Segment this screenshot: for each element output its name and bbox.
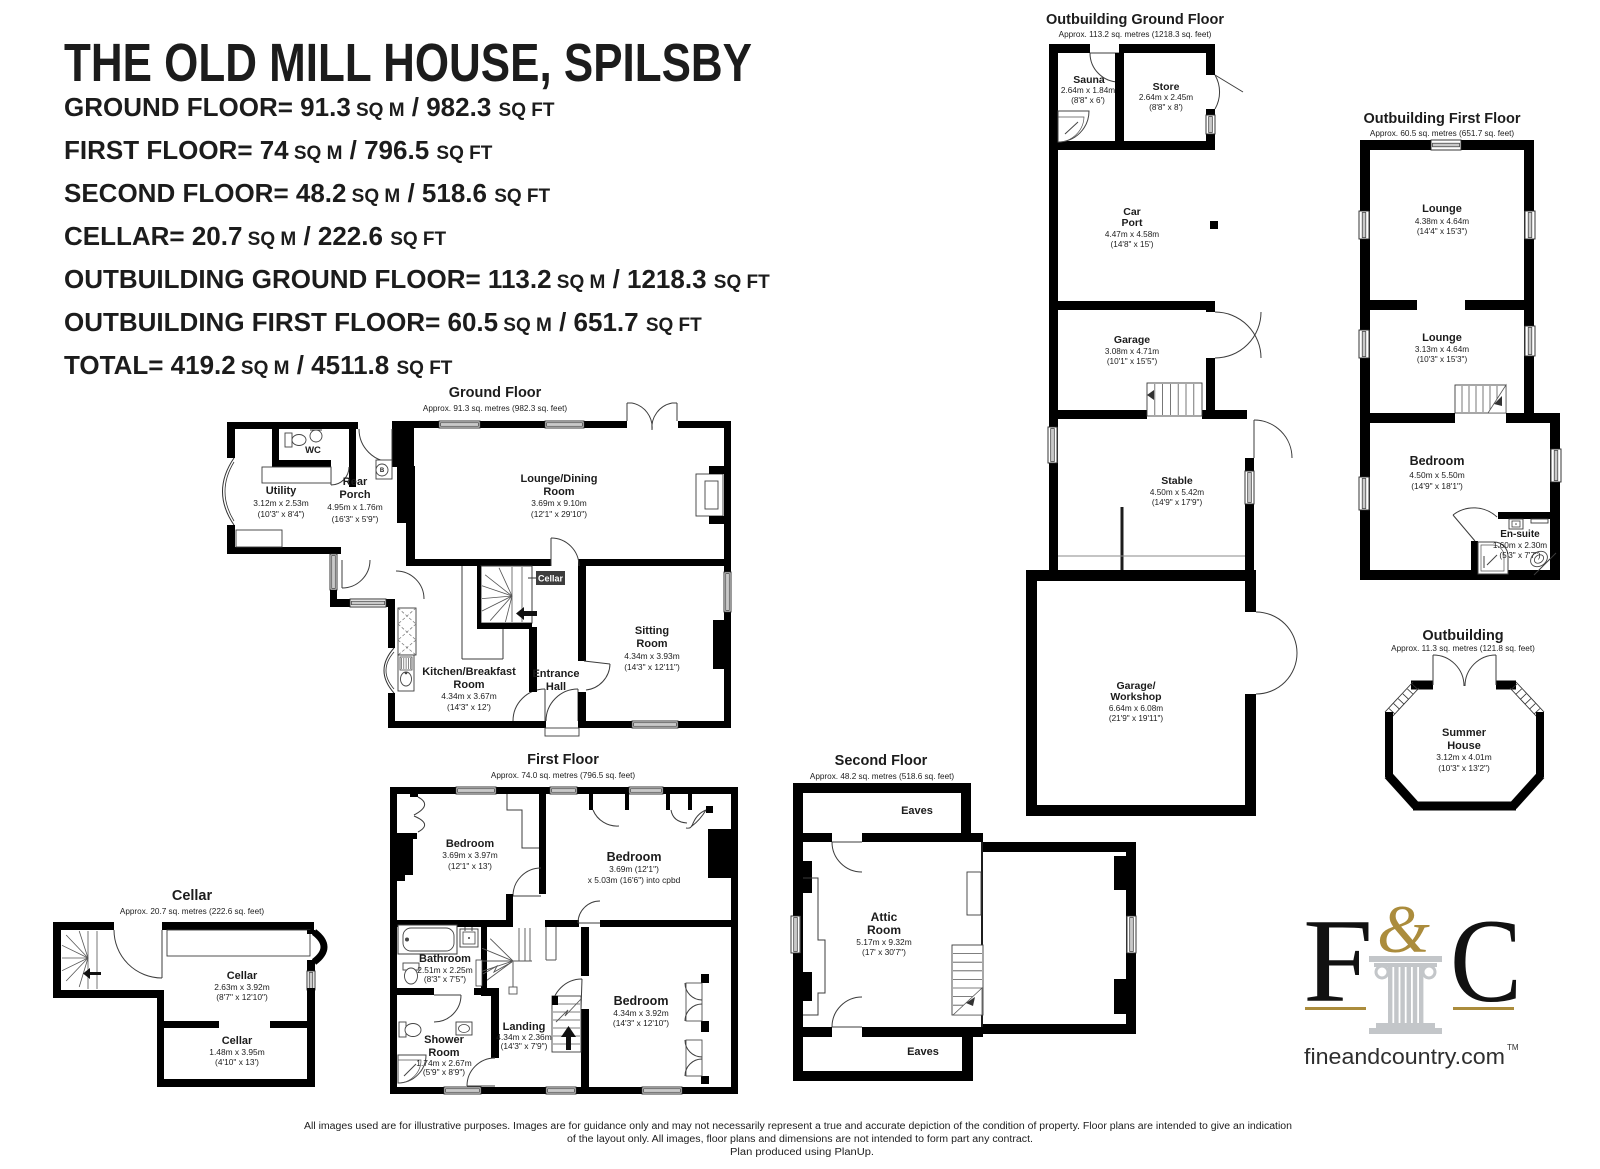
svg-text:Bedroom: Bedroom [607, 850, 662, 864]
svg-text:Outbuilding: Outbuilding [1422, 628, 1503, 644]
svg-text:(14'9" x 17'9"): (14'9" x 17'9") [1152, 498, 1203, 507]
svg-text:Sitting: Sitting [635, 625, 669, 637]
svg-text:(8'8" x 8'): (8'8" x 8') [1149, 103, 1183, 112]
svg-text:2.64m x 2.45m: 2.64m x 2.45m [1139, 93, 1193, 102]
svg-text:SECOND FLOOR= 48.2 SQ M / 518.: SECOND FLOOR= 48.2 SQ M / 518.6 SQ FT [64, 178, 551, 208]
svg-text:(12'1" x 29'10"): (12'1" x 29'10") [531, 509, 587, 519]
svg-text:&: & [1377, 891, 1430, 967]
svg-text:Utility: Utility [266, 485, 297, 497]
svg-text:Garage: Garage [1114, 334, 1150, 346]
svg-text:Approx. 11.3 sq. metres (121.8: Approx. 11.3 sq. metres (121.8 sq. feet) [1391, 644, 1535, 653]
svg-text:OUTBUILDING FIRST FLOOR= 60.5: OUTBUILDING FIRST FLOOR= 60.5 SQ M / 651… [64, 307, 702, 337]
svg-text:(8'7" x 12'10"): (8'7" x 12'10") [216, 992, 268, 1002]
svg-text:Approx. 74.0 sq. metres (796.5: Approx. 74.0 sq. metres (796.5 sq. feet) [491, 771, 636, 780]
svg-text:4.38m x 4.64m: 4.38m x 4.64m [1415, 217, 1469, 226]
svg-text:4.34m x 3.67m: 4.34m x 3.67m [441, 691, 496, 701]
svg-text:First Floor: First Floor [527, 752, 599, 768]
svg-text:Room: Room [636, 638, 667, 650]
svg-text:Eaves: Eaves [907, 1046, 939, 1058]
svg-text:(14'3" x 12'10"): (14'3" x 12'10") [613, 1018, 669, 1028]
svg-text:(14'4" x 15'3"): (14'4" x 15'3") [1417, 227, 1468, 236]
svg-text:Porch: Porch [339, 489, 370, 501]
svg-text:THE OLD MILL HOUSE, SPILSBY: THE OLD MILL HOUSE, SPILSBY [64, 33, 752, 93]
svg-text:3.69m x 9.10m: 3.69m x 9.10m [531, 498, 586, 508]
svg-text:(14'3" x 12'11"): (14'3" x 12'11") [624, 662, 680, 672]
svg-text:Bedroom: Bedroom [614, 994, 669, 1008]
svg-text:4.50m x 5.50m: 4.50m x 5.50m [1409, 470, 1464, 480]
svg-text:House: House [1447, 740, 1481, 752]
svg-text:Entrance: Entrance [532, 668, 579, 680]
svg-text:Outbuilding First Floor: Outbuilding First Floor [1363, 111, 1520, 127]
svg-text:All images used are for illust: All images used are for illustrative pur… [304, 1121, 1292, 1132]
svg-text:Bedroom: Bedroom [446, 838, 495, 850]
svg-text:(14'3" x 7'9"): (14'3" x 7'9") [501, 1041, 548, 1051]
svg-text:(10'3" x 15'3"): (10'3" x 15'3") [1417, 355, 1468, 364]
svg-text:Lounge/Dining: Lounge/Dining [521, 473, 598, 485]
svg-text:4.47m x 4.58m: 4.47m x 4.58m [1105, 230, 1159, 239]
svg-text:4.34m x 3.93m: 4.34m x 3.93m [624, 651, 679, 661]
svg-text:Summer: Summer [1442, 727, 1487, 739]
svg-text:(8'3" x 7'5"): (8'3" x 7'5") [424, 974, 466, 984]
svg-text:(14'3" x 12'): (14'3" x 12') [447, 702, 491, 712]
svg-text:1.60m x 2.30m: 1.60m x 2.30m [1493, 541, 1547, 550]
svg-text:6.64m x 6.08m: 6.64m x 6.08m [1109, 704, 1163, 713]
svg-text:(4'10" x 13'): (4'10" x 13') [215, 1057, 259, 1067]
svg-text:Bathroom: Bathroom [419, 953, 471, 965]
svg-text:fineandcountry.com: fineandcountry.com [1304, 1044, 1505, 1069]
svg-text:OUTBUILDING GROUND FLOOR= 113.: OUTBUILDING GROUND FLOOR= 113.2 SQ M / 1… [64, 264, 770, 294]
svg-text:(10'1" x 15'5"): (10'1" x 15'5") [1107, 357, 1158, 366]
svg-text:4.34m x 3.92m: 4.34m x 3.92m [613, 1008, 668, 1018]
svg-text:Approx. 113.2 sq. metres (1218: Approx. 113.2 sq. metres (1218.3 sq. fee… [1059, 30, 1212, 39]
svg-text:4.50m x 5.42m: 4.50m x 5.42m [1150, 488, 1204, 497]
svg-text:Workshop: Workshop [1110, 691, 1161, 703]
svg-text:Cellar: Cellar [172, 888, 213, 904]
svg-text:Sauna: Sauna [1073, 74, 1105, 86]
svg-text:Kitchen/Breakfast: Kitchen/Breakfast [422, 666, 516, 678]
svg-text:Stable: Stable [1161, 475, 1193, 487]
svg-text:Room: Room [543, 486, 574, 498]
svg-text:Bedroom: Bedroom [1410, 454, 1465, 468]
svg-text:Cellar: Cellar [538, 574, 564, 584]
svg-text:Room: Room [867, 923, 901, 937]
svg-text:B: B [380, 468, 385, 474]
svg-text:of the layout only. All images: of the layout only. All images, floor pl… [567, 1134, 1033, 1145]
svg-text:TM: TM [1507, 1043, 1519, 1052]
svg-text:Cellar: Cellar [222, 1035, 253, 1047]
svg-text:Lounge: Lounge [1422, 203, 1462, 215]
svg-text:GROUND FLOOR= 91.3 SQ M / 982.: GROUND FLOOR= 91.3 SQ M / 982.3 SQ FT [64, 92, 555, 122]
svg-text:3.12m x 4.01m: 3.12m x 4.01m [1436, 752, 1491, 762]
svg-text:(8'8" x 6'): (8'8" x 6') [1071, 96, 1105, 105]
svg-text:(14'9" x 18'1"): (14'9" x 18'1") [1411, 481, 1463, 491]
svg-text:Ground Floor: Ground Floor [449, 385, 542, 401]
svg-text:Eaves: Eaves [901, 805, 933, 817]
svg-text:Outbuilding Ground Floor: Outbuilding Ground Floor [1046, 12, 1224, 28]
svg-text:2.63m x 3.92m: 2.63m x 3.92m [214, 982, 269, 992]
svg-text:(10'3" x 13'2"): (10'3" x 13'2") [1438, 763, 1490, 773]
svg-text:Lounge: Lounge [1422, 332, 1462, 344]
svg-text:(10'3" x 8'4"): (10'3" x 8'4") [258, 509, 305, 519]
svg-text:3.12m x 2.53m: 3.12m x 2.53m [253, 498, 308, 508]
svg-text:(14'8" x 15'): (14'8" x 15') [1111, 240, 1154, 249]
svg-text:Approx. 20.7 sq. metres (222.6: Approx. 20.7 sq. metres (222.6 sq. feet) [120, 907, 265, 916]
svg-text:Hall: Hall [546, 681, 566, 693]
svg-text:1.48m x 3.95m: 1.48m x 3.95m [209, 1047, 264, 1057]
svg-text:Approx. 48.2 sq. metres (518.6: Approx. 48.2 sq. metres (518.6 sq. feet) [810, 772, 955, 781]
svg-text:Second Floor: Second Floor [835, 753, 928, 769]
svg-text:5.17m x 9.32m: 5.17m x 9.32m [856, 937, 911, 947]
svg-text:WC: WC [305, 445, 321, 456]
svg-text:Approx. 60.5 sq. metres (651.7: Approx. 60.5 sq. metres (651.7 sq. feet) [1370, 129, 1515, 138]
svg-text:Cellar: Cellar [227, 970, 258, 982]
svg-text:Attic: Attic [871, 910, 898, 924]
svg-text:(21'9" x 19'11"): (21'9" x 19'11") [1109, 714, 1164, 723]
svg-text:(5'3" x 7'7"): (5'3" x 7'7") [1499, 551, 1541, 560]
svg-text:Store: Store [1153, 81, 1180, 93]
svg-text:3.69m (12'1"): 3.69m (12'1") [609, 864, 659, 874]
svg-text:3.08m x 4.71m: 3.08m x 4.71m [1105, 347, 1159, 356]
svg-text:2.64m x 1.84m: 2.64m x 1.84m [1061, 86, 1115, 95]
svg-text:Port: Port [1122, 217, 1144, 229]
svg-text:Plan produced using PlanUp.: Plan produced using PlanUp. [730, 1147, 874, 1158]
svg-text:Rear: Rear [343, 476, 368, 488]
svg-text:Shower: Shower [424, 1034, 464, 1046]
svg-text:4.95m x 1.76m: 4.95m x 1.76m [327, 502, 382, 512]
svg-text:Approx. 91.3 sq. metres (982.3: Approx. 91.3 sq. metres (982.3 sq. feet) [423, 404, 568, 413]
svg-text:x 5.03m (16'6") into cpbd: x 5.03m (16'6") into cpbd [588, 875, 681, 885]
svg-text:(12'1" x 13'): (12'1" x 13') [448, 861, 492, 871]
svg-text:Room: Room [453, 679, 484, 691]
svg-text:(17' x 30'7"): (17' x 30'7") [862, 947, 906, 957]
svg-text:3.13m x 4.64m: 3.13m x 4.64m [1415, 345, 1469, 354]
svg-text:(16'3" x 5'9"): (16'3" x 5'9") [332, 514, 379, 524]
svg-text:FIRST FLOOR= 74 SQ M / 796.5 S: FIRST FLOOR= 74 SQ M / 796.5 SQ FT [64, 135, 493, 165]
svg-text:3.69m x 3.97m: 3.69m x 3.97m [442, 850, 497, 860]
svg-text:En-suite: En-suite [1500, 529, 1540, 540]
svg-text:(5'9" x 8'9"): (5'9" x 8'9") [423, 1067, 465, 1077]
